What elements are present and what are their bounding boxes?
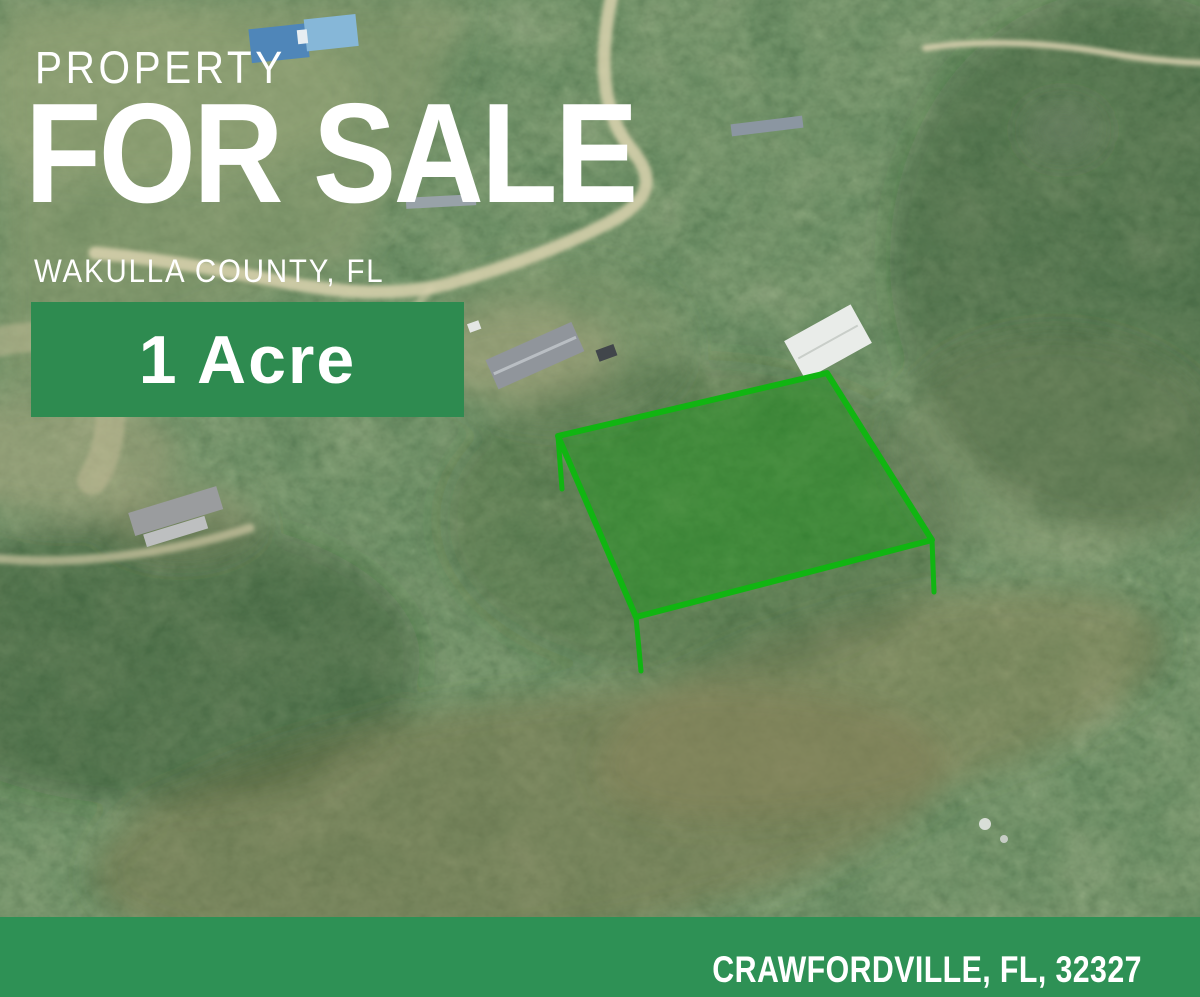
property-listing-image: PROPERTY FOR SALE WAKULLA COUNTY, FL 1 A…	[0, 0, 1200, 997]
acreage-badge: 1 Acre	[31, 302, 464, 417]
footer-banner: CRAWFORDVILLE, FL, 32327	[0, 917, 1200, 997]
boundary-leg	[932, 540, 934, 592]
location-label: CRAWFORDVILLE, FL, 32327	[712, 949, 1142, 991]
headline-for-sale: FOR SALE	[25, 83, 636, 225]
county-label: WAKULLA COUNTY, FL	[34, 253, 385, 290]
acreage-badge-label: 1 Acre	[139, 321, 356, 399]
